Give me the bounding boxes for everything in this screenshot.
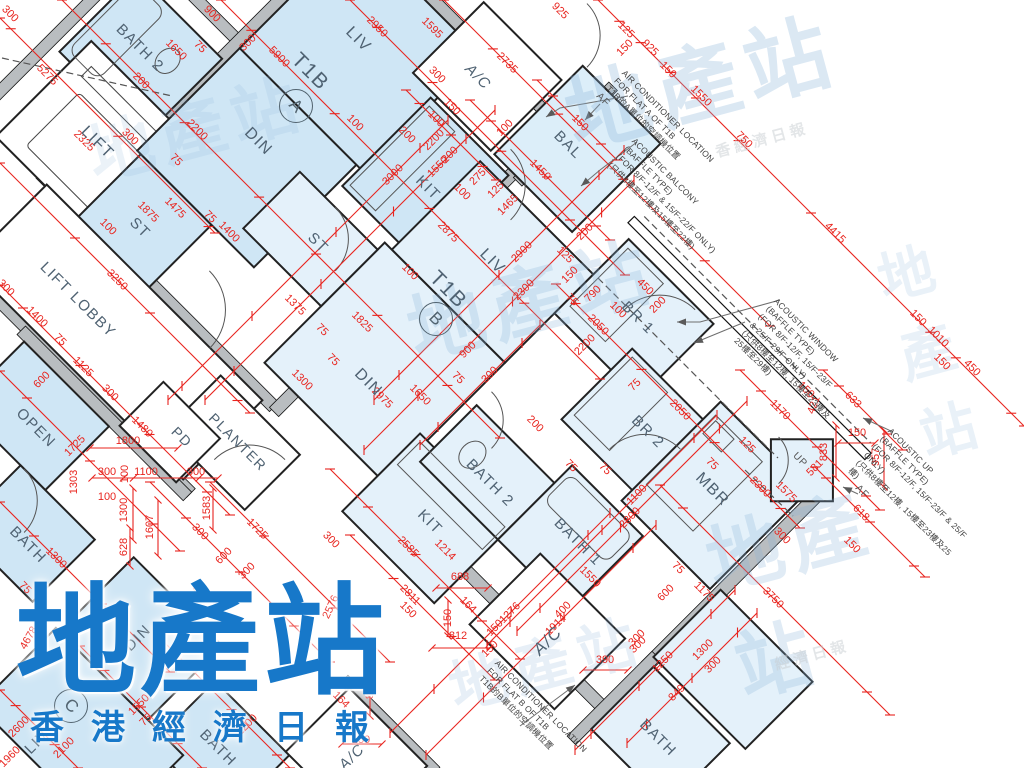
door-arc xyxy=(555,4,619,68)
leader-arrowhead xyxy=(863,418,873,425)
room-up-balcony xyxy=(771,439,833,501)
floor-plan-screenshot: 3005275232516502007530090059002200300751… xyxy=(0,0,1024,768)
dimension-line xyxy=(823,370,903,450)
leader-arrowhead xyxy=(843,487,853,494)
site-logo: 地產站 xyxy=(16,582,388,702)
site-logo-subtitle: 香港經濟日報 xyxy=(30,700,396,749)
